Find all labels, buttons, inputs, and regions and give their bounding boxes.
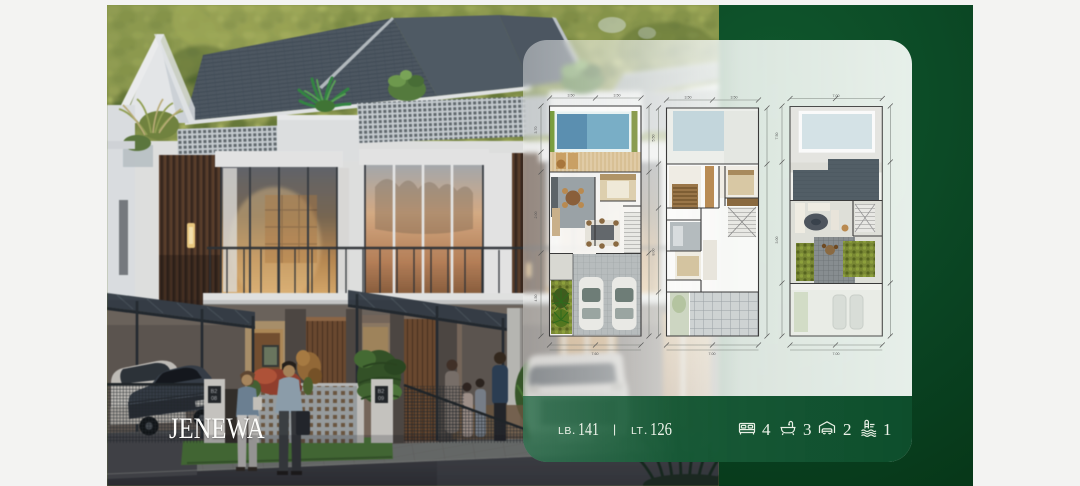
svg-text:2: 2 [843, 420, 852, 439]
svg-text:8.00: 8.00 [652, 249, 656, 256]
svg-text:1: 1 [883, 420, 892, 439]
svg-text:3: 3 [803, 420, 812, 439]
svg-text:5.50: 5.50 [652, 135, 656, 142]
svg-text:3.50: 3.50 [614, 94, 621, 98]
svg-text:141: 141 [578, 419, 599, 439]
svg-text:.: . [644, 422, 647, 437]
svg-text:|: | [613, 422, 616, 436]
svg-text:3.70: 3.70 [534, 127, 538, 134]
svg-text:LT: LT [631, 425, 644, 437]
svg-text:3.50: 3.50 [568, 94, 575, 98]
svg-text:126: 126 [650, 419, 672, 439]
svg-text:4: 4 [762, 420, 771, 439]
svg-text:.: . [572, 422, 575, 437]
svg-text:7.00: 7.00 [833, 94, 840, 98]
svg-text:3.00: 3.00 [775, 237, 779, 244]
svg-text:7.00: 7.00 [709, 352, 716, 356]
svg-text:3.50: 3.50 [685, 96, 692, 100]
svg-text:LB: LB [558, 425, 572, 437]
svg-text:7.00: 7.00 [833, 352, 840, 356]
svg-text:4.50: 4.50 [534, 295, 538, 302]
svg-text:7.50: 7.50 [775, 133, 779, 140]
svg-text:7.60: 7.60 [592, 352, 599, 356]
svg-text:3.50: 3.50 [731, 96, 738, 100]
svg-text:2.00: 2.00 [534, 212, 538, 219]
